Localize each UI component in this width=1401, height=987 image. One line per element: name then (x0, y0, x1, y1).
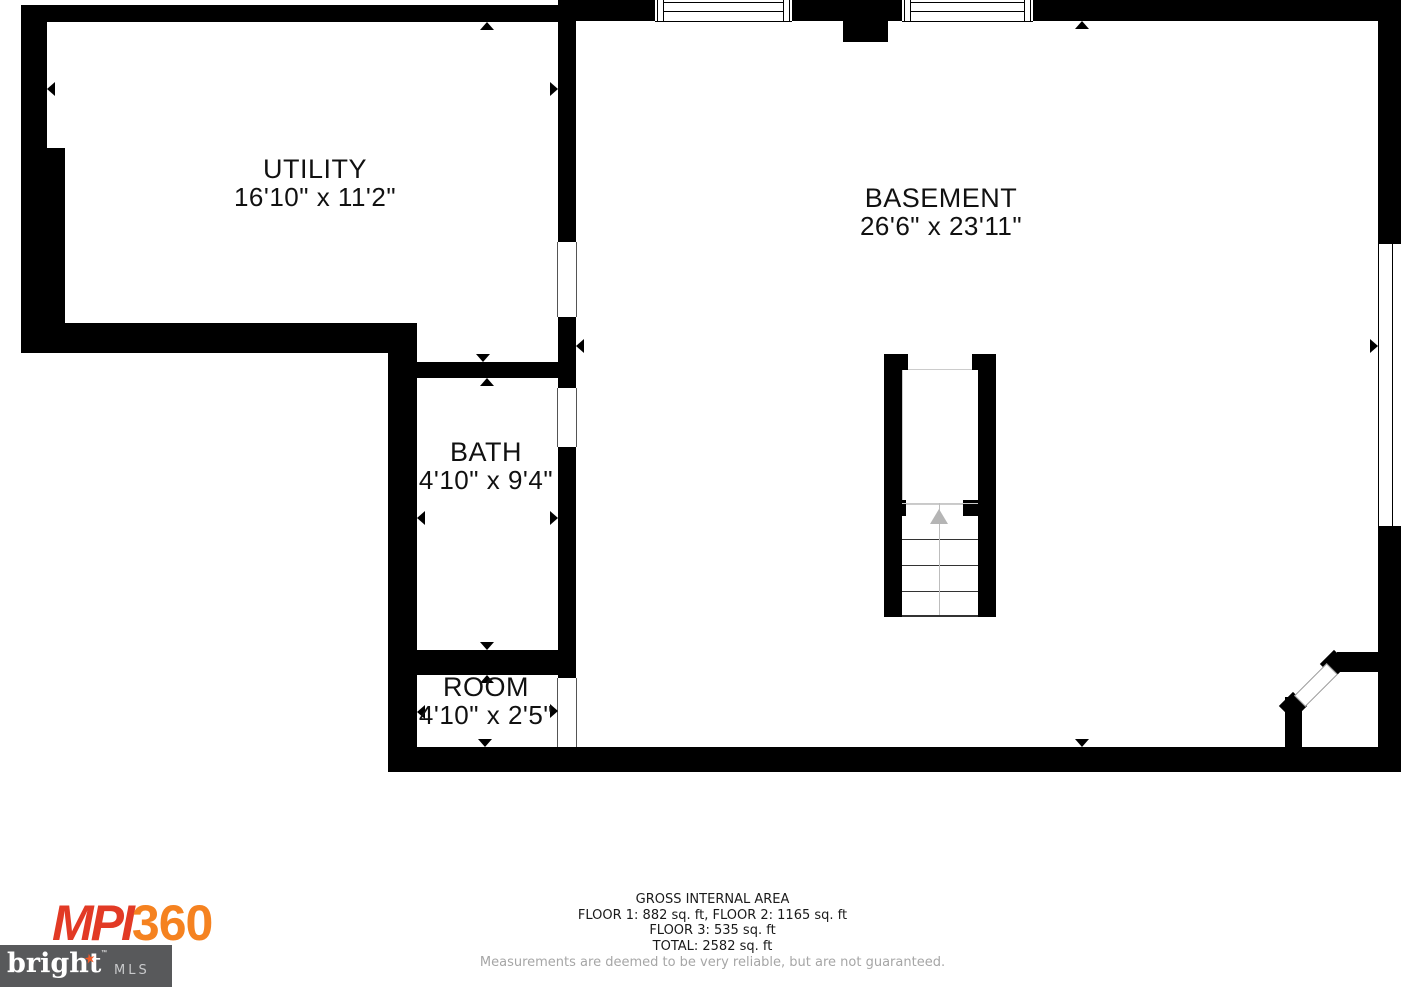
measure-arrow-down-icon (476, 354, 490, 362)
gross-area-summary: GROSS INTERNAL AREA FLOOR 1: 882 sq. ft,… (420, 892, 1005, 971)
stair-tread-line (902, 539, 978, 540)
wall-plan-bottom (388, 747, 1401, 772)
room-label-room: ROOM 4'10" x 2'5" (386, 673, 586, 729)
stair-wall-right (978, 354, 996, 617)
bright-mls-logo-mls: MLS (114, 963, 150, 978)
window-right-wall (1378, 243, 1401, 527)
measure-arrow-up-icon (480, 378, 494, 386)
stair-bottom-line (902, 615, 978, 617)
opening-jamb-line (576, 242, 577, 317)
room-label-utility: UTILITY 16'10" x 11'2" (165, 155, 465, 211)
room-name: ROOM (386, 673, 586, 701)
floor-areas-line: FLOOR 1: 882 sq. ft, FLOOR 2: 1165 sq. f… (420, 908, 1005, 924)
wall-top-pillar (843, 21, 888, 42)
room-name: UTILITY (165, 155, 465, 183)
measure-arrow-up-icon (1075, 21, 1089, 29)
wall-right-lower (1378, 525, 1401, 772)
wall-top-utility (21, 5, 576, 22)
mpi360-logo-mpi: MPI (52, 895, 132, 951)
wall-divider-upper (558, 0, 576, 242)
measure-arrow-right-icon (550, 82, 558, 96)
stair-landing-line (902, 503, 978, 504)
measure-arrow-left-icon (576, 339, 584, 353)
room-name: BASEMENT (791, 184, 1091, 212)
stair-up-arrow-icon (930, 509, 948, 524)
floorplan-canvas: UTILITY 16'10" x 11'2" BASEMENT 26'6" x … (0, 0, 1401, 987)
measure-arrow-down-icon (480, 642, 494, 650)
trademark-symbol: ™ (101, 950, 107, 956)
measure-arrow-right-icon (1370, 339, 1378, 353)
room-label-basement: BASEMENT 26'6" x 23'11" (791, 184, 1091, 240)
bright-mls-logo: bright ★ ™ MLS (0, 945, 172, 987)
wall-bath-top (417, 362, 576, 378)
stair-wall-right-top-notch (972, 354, 996, 370)
measure-arrow-down-icon (478, 739, 492, 747)
room-dimensions: 26'6" x 23'11" (791, 212, 1091, 240)
room-label-bath: BATH 4'10" x 9'4" (386, 438, 586, 494)
mpi360-logo: MPI360 (52, 894, 212, 952)
stair-tread-line (902, 591, 978, 592)
wall-right-upper (1378, 21, 1401, 243)
room-dimensions: 16'10" x 11'2" (165, 183, 465, 211)
room-name: BATH (386, 438, 586, 466)
room-dimensions: 4'10" x 9'4" (386, 466, 586, 494)
disclaimer-text: Measurements are deemed to be very relia… (420, 955, 1005, 971)
wall-left-upper (21, 5, 47, 160)
measure-arrow-left-icon (417, 511, 425, 525)
corner-door-leaf (1294, 663, 1338, 707)
window-top-left (655, 0, 792, 22)
floor-areas-line: FLOOR 3: 535 sq. ft (420, 923, 1005, 939)
measure-arrow-up-icon (480, 22, 494, 30)
window-top-right (902, 0, 1033, 22)
total-area-line: TOTAL: 2582 sq. ft (420, 939, 1005, 955)
gross-area-title: GROSS INTERNAL AREA (420, 892, 1005, 908)
measure-arrow-down-icon (1075, 739, 1089, 747)
opening-jamb-line (557, 242, 558, 317)
stair-void (902, 369, 980, 505)
measure-arrow-left-icon (47, 82, 55, 96)
wall-utility-bottom (21, 323, 417, 353)
room-dimensions: 4'10" x 2'5" (386, 701, 586, 729)
measure-arrow-right-icon (550, 511, 558, 525)
stair-wall-left (884, 354, 902, 617)
mpi360-logo-360: 360 (132, 895, 212, 951)
stair-tread-line (902, 565, 978, 566)
stair-wall-left-top-notch (884, 354, 908, 370)
